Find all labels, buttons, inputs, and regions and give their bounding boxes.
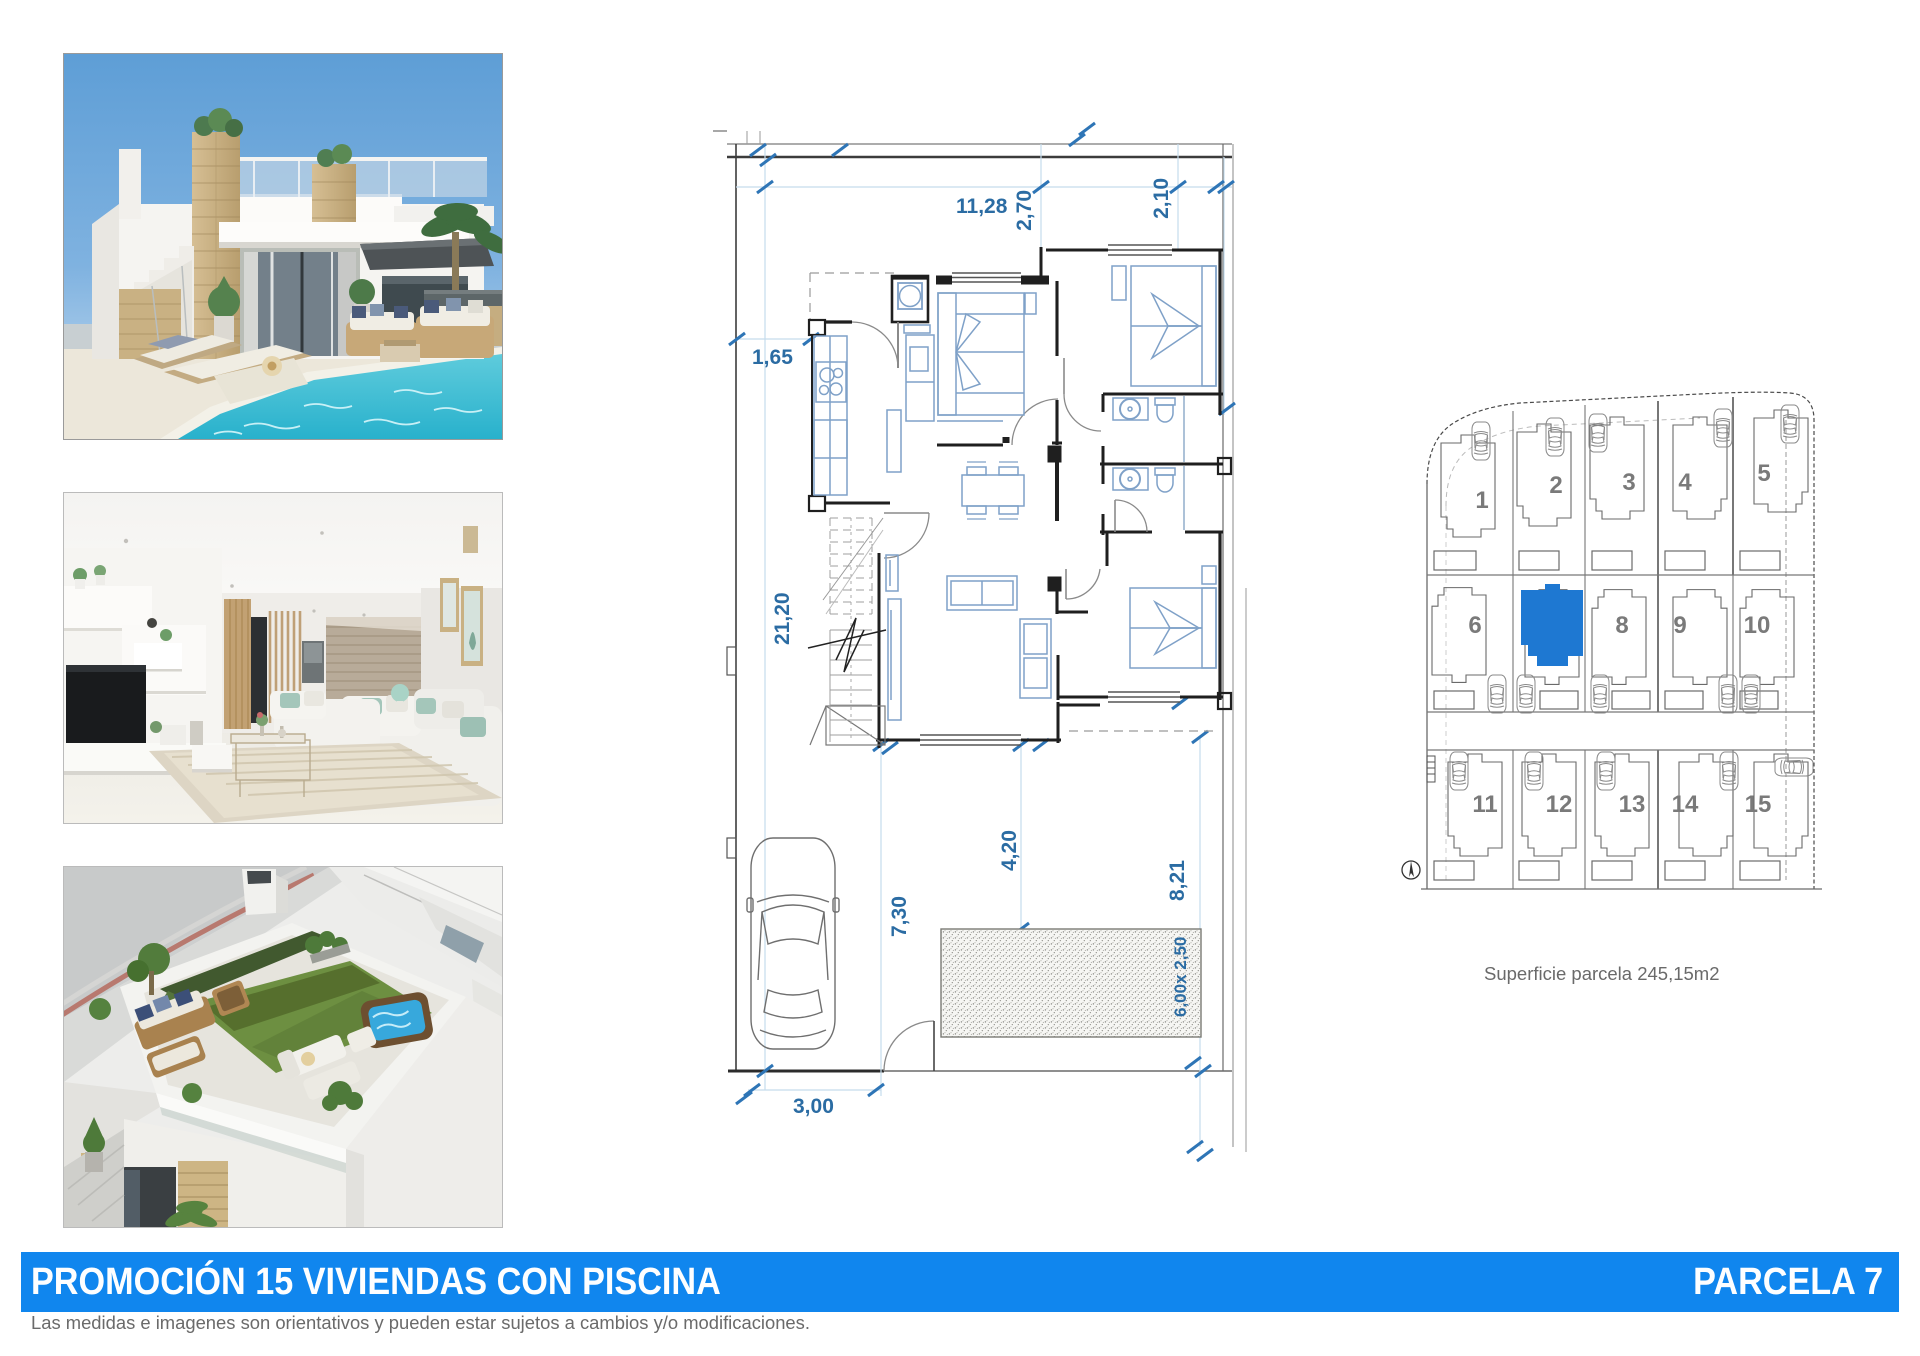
svg-text:15: 15 xyxy=(1745,791,1772,818)
svg-text:8: 8 xyxy=(1615,612,1628,639)
svg-text:1: 1 xyxy=(1475,487,1488,514)
svg-text:6: 6 xyxy=(1468,612,1481,639)
svg-text:9: 9 xyxy=(1673,612,1686,639)
svg-text:10: 10 xyxy=(1744,612,1771,639)
svg-text:3: 3 xyxy=(1622,469,1635,496)
svg-text:4: 4 xyxy=(1678,469,1692,496)
svg-text:5: 5 xyxy=(1757,460,1770,487)
svg-text:14: 14 xyxy=(1672,791,1699,818)
svg-text:11: 11 xyxy=(1472,791,1497,818)
svg-text:13: 13 xyxy=(1619,791,1646,818)
svg-text:12: 12 xyxy=(1546,791,1573,818)
svg-text:2: 2 xyxy=(1549,472,1562,499)
